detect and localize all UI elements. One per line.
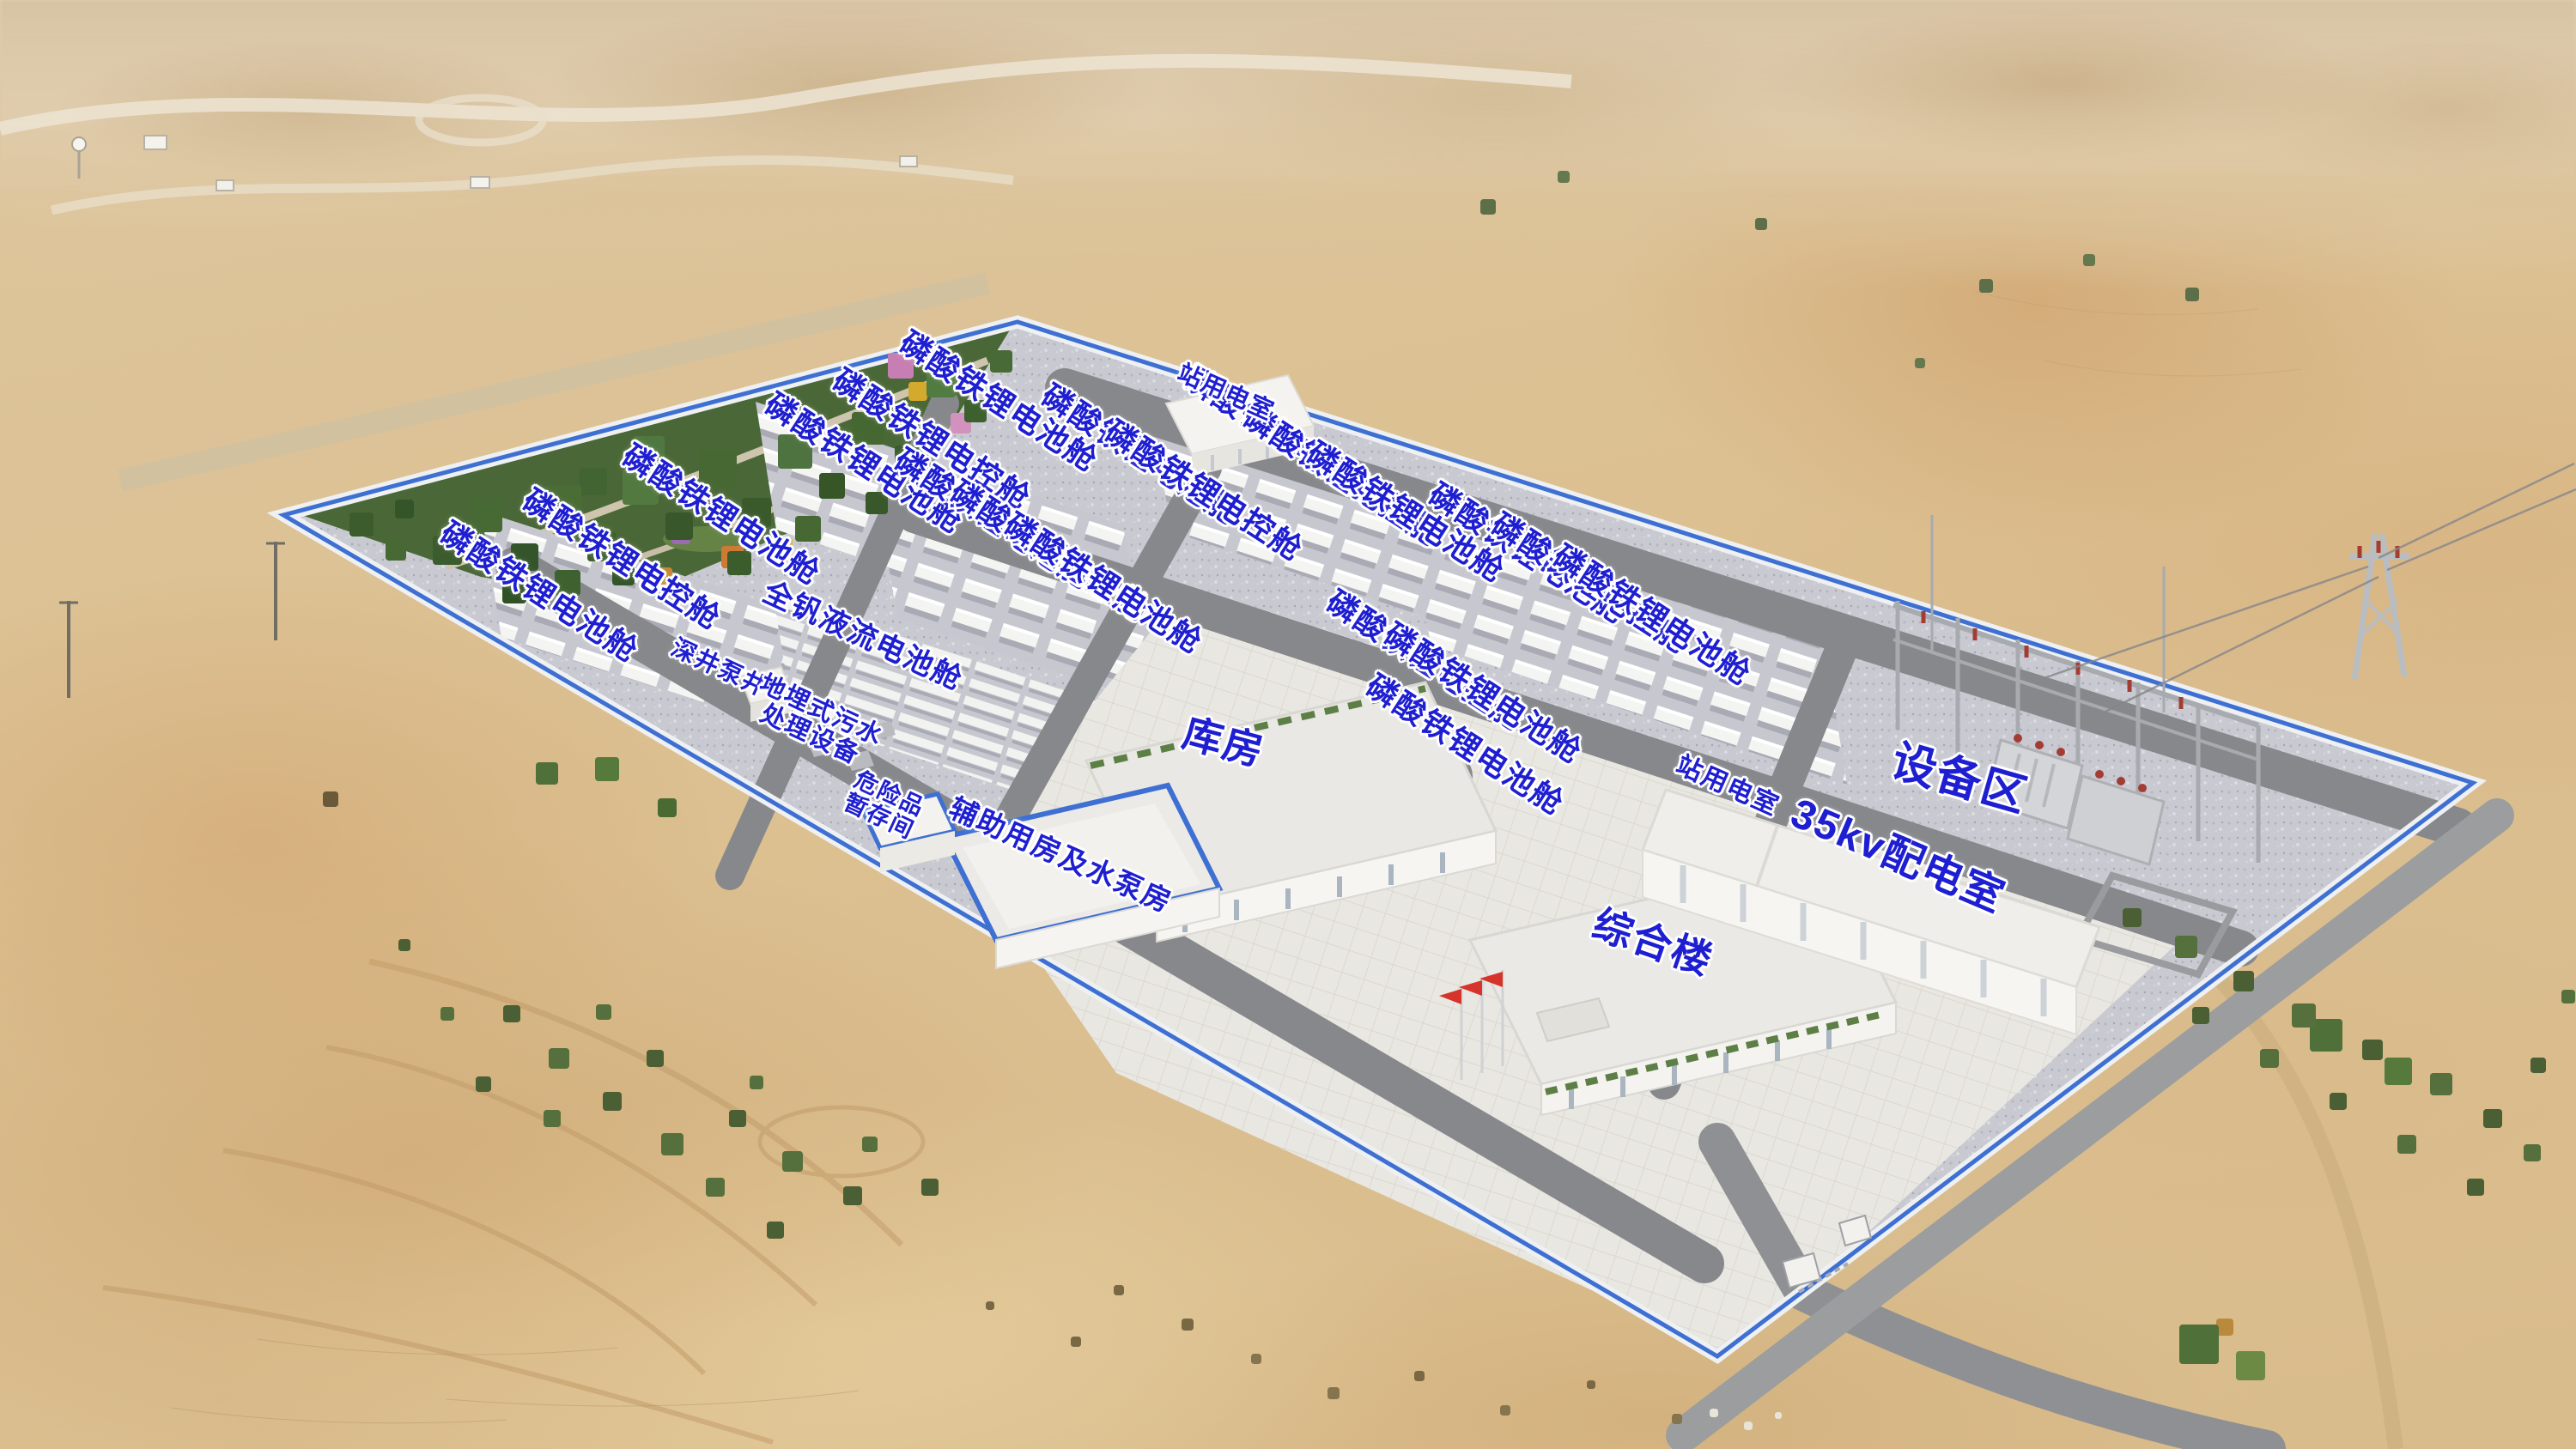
label-vanadium-flow-battery-cabin: 全钒液流电池舱 — [758, 576, 968, 695]
labels-layer: 磷酸铁锂电池舱磷酸铁锂电控舱磷酸铁锂电池舱磷酸铁锂电池舱磷酸铁锂电控舱磷酸铁锂电… — [0, 0, 2576, 1449]
label-equipment-area: 设备区 — [1886, 737, 2033, 822]
label-auxiliary-pump-house: 辅助用房及水泵房 — [945, 793, 1176, 919]
label-office-building: 综合楼 — [1588, 903, 1718, 983]
label-35kv-distribution-room: 35kv配电室 — [1784, 792, 2011, 921]
aerial-site-rendering: 磷酸铁锂电池舱磷酸铁锂电控舱磷酸铁锂电池舱磷酸铁锂电池舱磷酸铁锂电控舱磷酸铁锂电… — [0, 0, 2576, 1449]
label-buried-sewage-treatment: 地埋式污水 处理设备 — [744, 670, 887, 774]
label-station-power-room: 站用电室 — [1672, 751, 1783, 821]
label-lfp-battery-cabin: 磷酸铁锂电池舱 — [999, 508, 1208, 660]
label-lfp-battery-cabin: 磷酸铁锂电池舱 — [1547, 540, 1757, 692]
label-warehouse: 库房 — [1178, 712, 1268, 773]
label-hazardous-goods-storage: 危险品 暂存间 — [840, 767, 928, 844]
